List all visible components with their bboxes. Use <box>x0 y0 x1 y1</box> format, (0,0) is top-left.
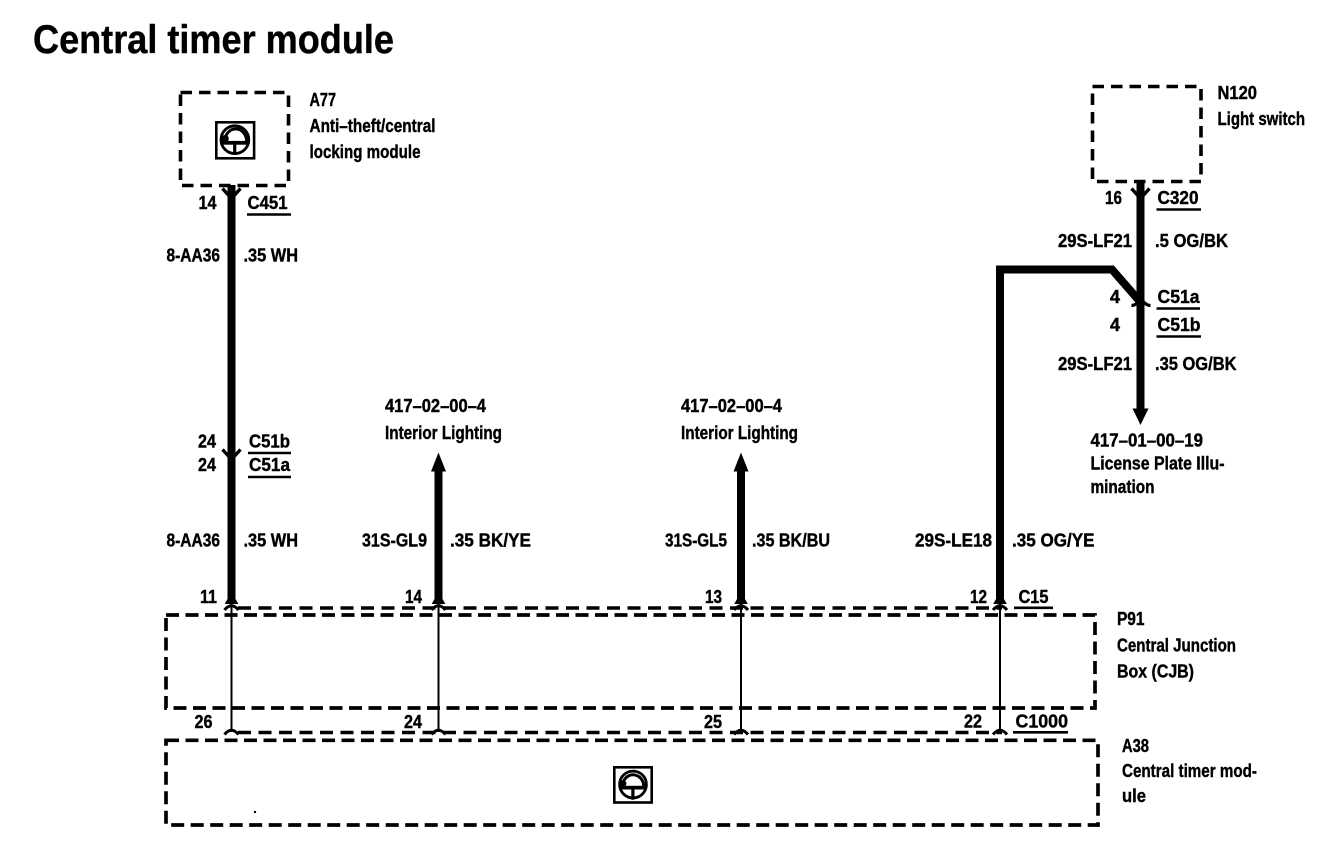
svg-text:Anti–theft/central: Anti–theft/central <box>310 116 436 136</box>
svg-text:C51a: C51a <box>249 455 291 475</box>
svg-text:.35 WH: .35 WH <box>244 246 299 266</box>
svg-text:Central Junction: Central Junction <box>1117 636 1236 656</box>
svg-text:22: 22 <box>964 712 982 732</box>
svg-text:License Plate Illu-: License Plate Illu- <box>1091 454 1225 474</box>
svg-text:14: 14 <box>405 587 422 607</box>
svg-text:29S-LF21: 29S-LF21 <box>1058 231 1132 251</box>
svg-text:C51a: C51a <box>1158 287 1201 307</box>
svg-text:Interior Lighting: Interior Lighting <box>385 423 502 443</box>
svg-text:26: 26 <box>195 712 213 732</box>
svg-text:.35 OG/YE: .35 OG/YE <box>1012 531 1095 551</box>
svg-text:8-AA36: 8-AA36 <box>167 531 221 551</box>
svg-text:C1000: C1000 <box>1016 712 1069 732</box>
svg-text:Central timer module: Central timer module <box>33 18 394 62</box>
svg-text:.35 OG/BK: .35 OG/BK <box>1155 354 1237 374</box>
svg-text:11: 11 <box>200 587 217 607</box>
svg-text:417–01–00–19: 417–01–00–19 <box>1091 430 1204 450</box>
svg-text:Interior Lighting: Interior Lighting <box>681 423 798 443</box>
svg-text:24: 24 <box>198 455 216 475</box>
svg-text:29S-LF21: 29S-LF21 <box>1058 354 1132 374</box>
svg-text:.35 BK/YE: .35 BK/YE <box>450 531 531 551</box>
svg-text:A77: A77 <box>310 90 337 110</box>
svg-text:13: 13 <box>705 587 722 607</box>
svg-text:ule: ule <box>1122 786 1146 806</box>
svg-text:8-AA36: 8-AA36 <box>167 246 221 266</box>
svg-text:31S-GL9: 31S-GL9 <box>362 531 427 551</box>
svg-text:C51b: C51b <box>249 432 290 452</box>
svg-text:16: 16 <box>1105 188 1122 208</box>
svg-text:C15: C15 <box>1019 587 1049 607</box>
svg-text:14: 14 <box>199 193 217 213</box>
svg-text:.5 OG/BK: .5 OG/BK <box>1155 231 1228 251</box>
svg-text:C451: C451 <box>248 193 288 213</box>
svg-text:C51b: C51b <box>1158 315 1201 335</box>
svg-text:.35 BK/BU: .35 BK/BU <box>752 531 830 551</box>
svg-text:12: 12 <box>970 587 987 607</box>
svg-text:4: 4 <box>1110 287 1120 307</box>
svg-text:A38: A38 <box>1122 736 1149 756</box>
svg-text:24: 24 <box>404 712 422 732</box>
svg-text:P91: P91 <box>1117 609 1145 629</box>
svg-text:29S-LE18: 29S-LE18 <box>915 531 992 551</box>
svg-text:.35 WH: .35 WH <box>244 531 299 551</box>
svg-text:Central timer mod-: Central timer mod- <box>1122 761 1257 781</box>
svg-text:mination: mination <box>1091 477 1155 497</box>
svg-text:4: 4 <box>1110 315 1120 335</box>
svg-text:417–02–00–4: 417–02–00–4 <box>681 396 782 416</box>
svg-text:N120: N120 <box>1218 83 1258 103</box>
svg-text:24: 24 <box>198 432 216 452</box>
svg-text:25: 25 <box>704 712 722 732</box>
svg-text:Box (CJB): Box (CJB) <box>1117 662 1194 682</box>
svg-text:Light switch: Light switch <box>1218 109 1306 129</box>
svg-text:31S-GL5: 31S-GL5 <box>665 531 727 551</box>
svg-text:locking module: locking module <box>310 142 421 162</box>
svg-text:C320: C320 <box>1158 188 1199 208</box>
svg-text:417–02–00–4: 417–02–00–4 <box>385 396 486 416</box>
